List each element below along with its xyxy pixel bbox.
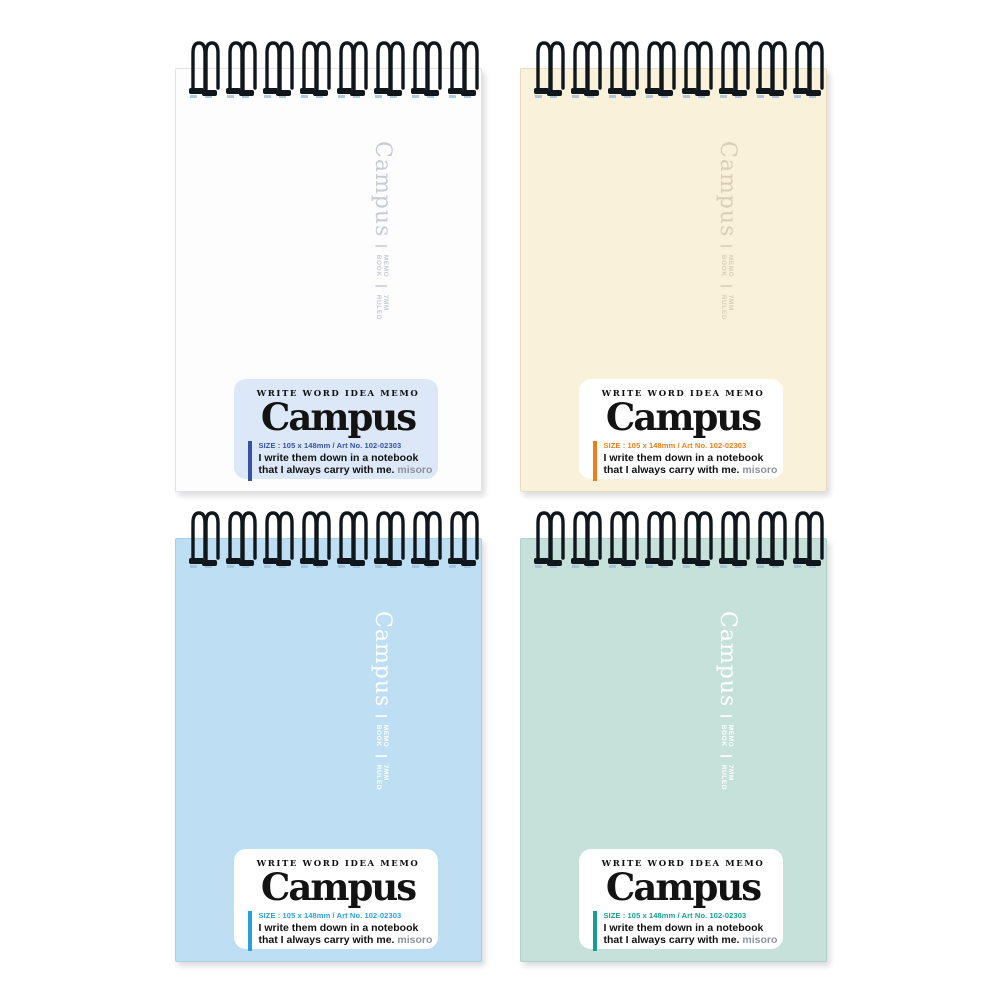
- side-brand-text: Campus: [371, 611, 393, 707]
- accent-bar: [248, 441, 252, 481]
- cover-side-text: Campus | MEMO BOOK | 7MM RULED: [370, 611, 394, 811]
- label-info-row: SIZE : 105 x 148mm / Art No. 102-02303 I…: [593, 440, 773, 481]
- label-description: I write them down in a notebook that I a…: [604, 922, 778, 946]
- side-divider: |: [720, 284, 734, 287]
- side-stack-memo-book: MEMO BOOK: [720, 255, 734, 278]
- notebook-blue: Campus | MEMO BOOK | 7MM RULED WRITE WOR…: [175, 508, 480, 1000]
- label-info-row: SIZE : 105 x 148mm / Art No. 102-02303 I…: [593, 910, 773, 951]
- signature-text: misoro: [742, 464, 777, 476]
- label-description: I write them down in a notebook that I a…: [259, 452, 433, 476]
- cover-side-text: Campus | MEMO BOOK | 7MM RULED: [715, 141, 739, 341]
- notebook-mint: Campus | MEMO BOOK | 7MM RULED WRITE WOR…: [520, 508, 825, 1000]
- label-info-row: SIZE : 105 x 148mm / Art No. 102-02303 I…: [248, 910, 428, 951]
- cover-label: WRITE WORD IDEA MEMO Campus SIZE : 105 x…: [579, 849, 783, 949]
- side-divider: |: [375, 754, 389, 757]
- notebook-cream: Campus | MEMO BOOK | 7MM RULED WRITE WOR…: [520, 38, 825, 530]
- side-stack-memo-book: MEMO BOOK: [720, 725, 734, 748]
- spiral-binding-icon: [520, 508, 825, 578]
- side-divider: |: [375, 244, 389, 247]
- notebook-white: Campus | MEMO BOOK | 7MM RULED WRITE WOR…: [175, 38, 480, 530]
- accent-bar: [593, 911, 597, 951]
- label-description: I write them down in a notebook that I a…: [259, 922, 433, 946]
- notebook-cover: Campus | MEMO BOOK | 7MM RULED WRITE WOR…: [520, 538, 827, 962]
- size-line: SIZE : 105 x 148mm / Art No. 102-02303: [259, 441, 433, 450]
- size-line: SIZE : 105 x 148mm / Art No. 102-02303: [604, 911, 778, 920]
- notebook-cover: Campus | MEMO BOOK | 7MM RULED WRITE WOR…: [175, 68, 482, 492]
- notebook-cover: Campus | MEMO BOOK | 7MM RULED WRITE WOR…: [175, 538, 482, 962]
- signature-text: misoro: [397, 464, 432, 476]
- side-divider: |: [375, 714, 389, 717]
- cover-label: WRITE WORD IDEA MEMO Campus SIZE : 105 x…: [579, 379, 783, 479]
- signature-text: misoro: [397, 934, 432, 946]
- size-line: SIZE : 105 x 148mm / Art No. 102-02303: [604, 441, 778, 450]
- cover-label: WRITE WORD IDEA MEMO Campus SIZE : 105 x…: [234, 379, 438, 479]
- cover-side-text: Campus | MEMO BOOK | 7MM RULED: [370, 141, 394, 341]
- side-stack-ruling: 7MM RULED: [375, 765, 389, 790]
- side-brand-text: Campus: [716, 141, 738, 237]
- campus-logo: Campus: [248, 869, 428, 905]
- notebook-cover: Campus | MEMO BOOK | 7MM RULED WRITE WOR…: [520, 68, 827, 492]
- label-info-row: SIZE : 105 x 148mm / Art No. 102-02303 I…: [248, 440, 428, 481]
- side-brand-text: Campus: [371, 141, 393, 237]
- cover-side-text: Campus | MEMO BOOK | 7MM RULED: [715, 611, 739, 811]
- campus-logo: Campus: [248, 399, 428, 435]
- campus-logo: Campus: [593, 399, 773, 435]
- spiral-binding-icon: [175, 508, 480, 578]
- accent-bar: [593, 441, 597, 481]
- signature-text: misoro: [742, 934, 777, 946]
- side-stack-memo-book: MEMO BOOK: [375, 725, 389, 748]
- side-divider: |: [720, 244, 734, 247]
- campus-logo: Campus: [593, 869, 773, 905]
- side-stack-ruling: 7MM RULED: [720, 295, 734, 320]
- side-brand-text: Campus: [716, 611, 738, 707]
- side-divider: |: [375, 284, 389, 287]
- side-divider: |: [720, 714, 734, 717]
- label-description: I write them down in a notebook that I a…: [604, 452, 778, 476]
- cover-label: WRITE WORD IDEA MEMO Campus SIZE : 105 x…: [234, 849, 438, 949]
- accent-bar: [248, 911, 252, 951]
- side-stack-ruling: 7MM RULED: [375, 295, 389, 320]
- side-divider: |: [720, 754, 734, 757]
- side-stack-memo-book: MEMO BOOK: [375, 255, 389, 278]
- spiral-binding-icon: [175, 38, 480, 108]
- size-line: SIZE : 105 x 148mm / Art No. 102-02303: [259, 911, 433, 920]
- side-stack-ruling: 7MM RULED: [720, 765, 734, 790]
- spiral-binding-icon: [520, 38, 825, 108]
